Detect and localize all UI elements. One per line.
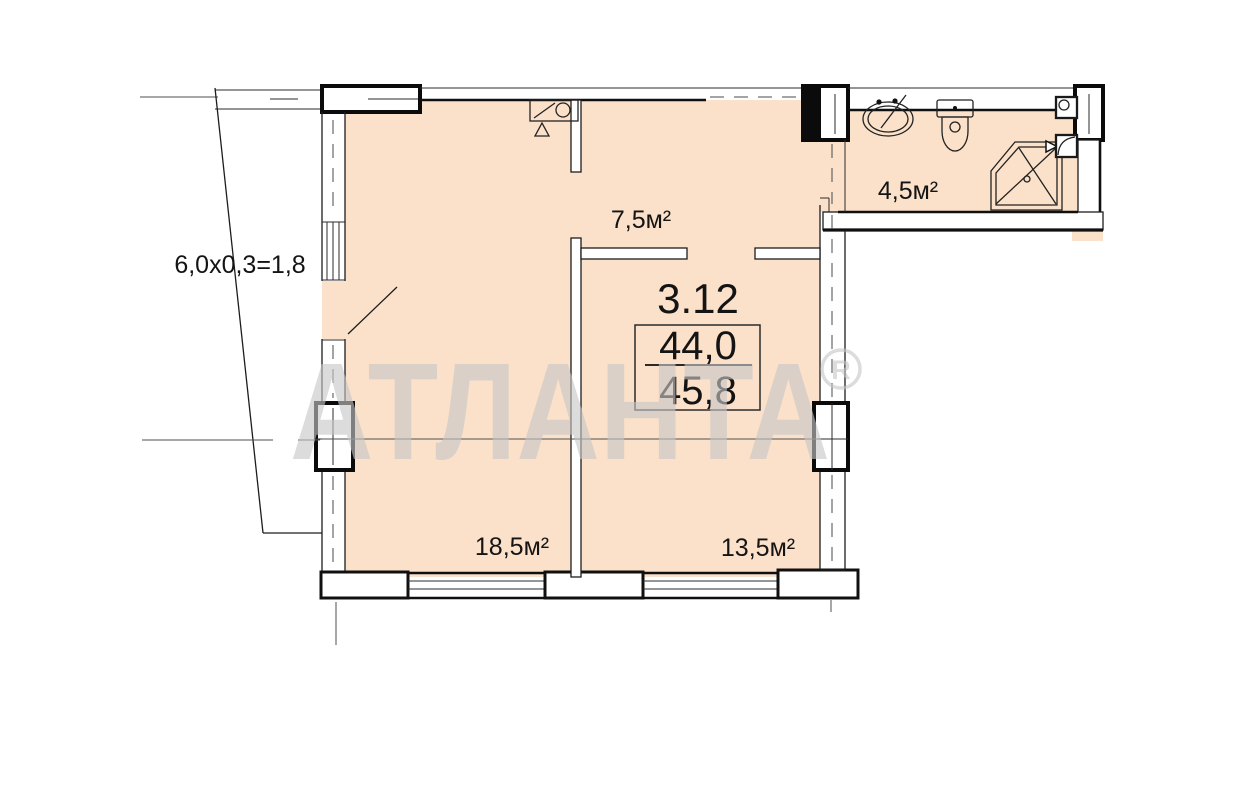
watermark: АТЛАНТА R bbox=[290, 335, 860, 489]
partition-hall-right bbox=[755, 248, 820, 259]
mixer-icon bbox=[1056, 135, 1077, 157]
floor-plan-page: 7,5м² 4,5м² 18,5м² 13,5м² 6,0x0,3=1,8 3.… bbox=[0, 0, 1241, 800]
boiler-icon bbox=[1056, 97, 1077, 118]
unit-number-label: 3.12 bbox=[657, 275, 739, 322]
wall-corner-bottom-right bbox=[778, 570, 858, 598]
room-label-living: 18,5м² bbox=[475, 533, 549, 561]
room-label-bathroom: 4,5м² bbox=[878, 177, 938, 205]
balcony-slant-wall bbox=[215, 88, 263, 533]
partition-stub-top bbox=[571, 100, 581, 172]
room-label-bedroom: 13,5м² bbox=[721, 534, 795, 562]
room-label-hallway: 7,5м² bbox=[611, 206, 671, 234]
wall-corner-bottom-left bbox=[321, 572, 408, 598]
bottom-wall bbox=[321, 570, 858, 598]
watermark-text: АТЛАНТА bbox=[290, 335, 830, 489]
wall-pier-bottom bbox=[545, 572, 643, 598]
balcony-dimension-label: 6,0x0,3=1,8 bbox=[174, 251, 305, 279]
floor-plan-canvas: 7,5м² 4,5м² 18,5м² 13,5м² 6,0x0,3=1,8 3.… bbox=[0, 0, 1241, 800]
partition-hall-left bbox=[581, 248, 687, 259]
registered-mark-letter: R bbox=[831, 355, 851, 385]
